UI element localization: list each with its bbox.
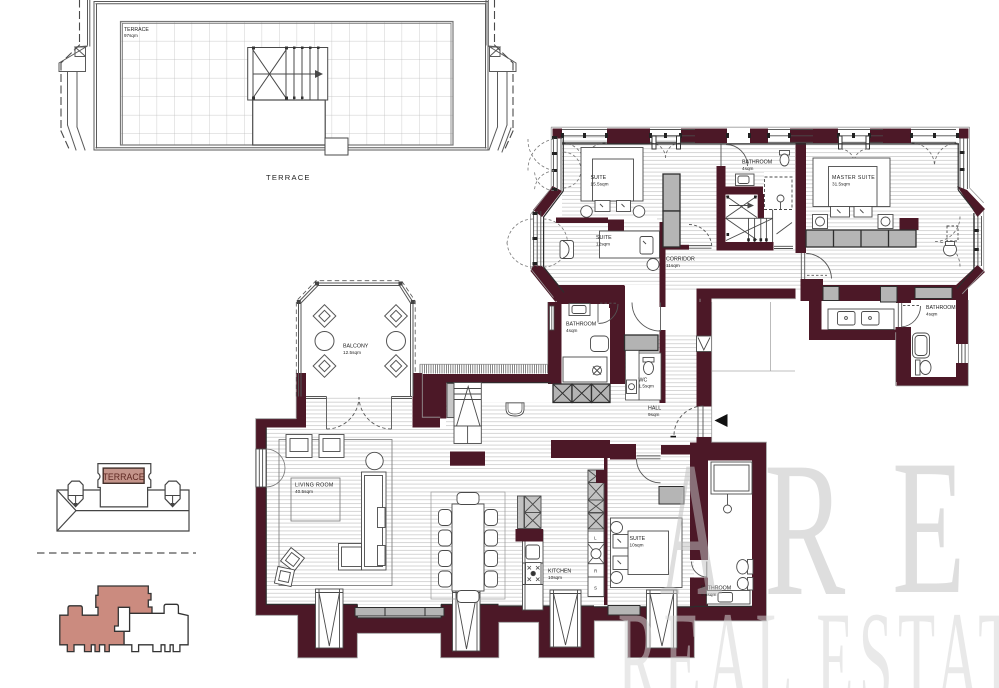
svg-text:12sqm: 12sqm — [596, 242, 610, 247]
svg-text:BATHROOM: BATHROOM — [742, 160, 772, 166]
svg-text:BATHROOM: BATHROOM — [926, 305, 956, 311]
svg-text:BALCONY: BALCONY — [343, 344, 369, 350]
svg-text:BATHROOM: BATHROOM — [566, 322, 596, 328]
svg-text:HALL: HALL — [648, 406, 661, 412]
svg-text:SUITE: SUITE — [591, 175, 607, 181]
svg-text:TERRACE: TERRACE — [266, 173, 311, 182]
svg-text:4sqm: 4sqm — [926, 312, 938, 317]
svg-text:4sqm: 4sqm — [566, 328, 578, 333]
svg-text:CORRIDOR: CORRIDOR — [666, 257, 695, 263]
svg-text:TERRACE: TERRACE — [103, 472, 145, 482]
svg-text:40.5sqm: 40.5sqm — [295, 489, 313, 494]
svg-text:15.5sqm: 15.5sqm — [591, 182, 609, 187]
svg-text:SUITE: SUITE — [630, 536, 646, 542]
svg-text:S: S — [594, 586, 597, 591]
svg-text:4sqm: 4sqm — [742, 166, 754, 171]
svg-text:L: L — [594, 536, 597, 541]
svg-text:KITCHEN: KITCHEN — [548, 569, 571, 575]
svg-text:MASTER SUITE: MASTER SUITE — [832, 175, 875, 181]
svg-text:97sqm: 97sqm — [124, 33, 138, 38]
svg-text:SUITE: SUITE — [596, 235, 612, 241]
svg-text:LIVING ROOM: LIVING ROOM — [295, 483, 334, 489]
svg-text:10sqm: 10sqm — [630, 543, 644, 548]
svg-text:11sqm: 11sqm — [666, 263, 680, 268]
svg-text:1.5sqm: 1.5sqm — [639, 384, 654, 389]
svg-text:10sqm: 10sqm — [548, 575, 562, 580]
svg-text:REAL ESTATE: REAL ESTATE — [618, 584, 999, 688]
svg-text:31.5sqm: 31.5sqm — [832, 182, 850, 187]
svg-text:12.5sqm: 12.5sqm — [343, 350, 361, 355]
svg-text:9sqm: 9sqm — [648, 412, 660, 417]
